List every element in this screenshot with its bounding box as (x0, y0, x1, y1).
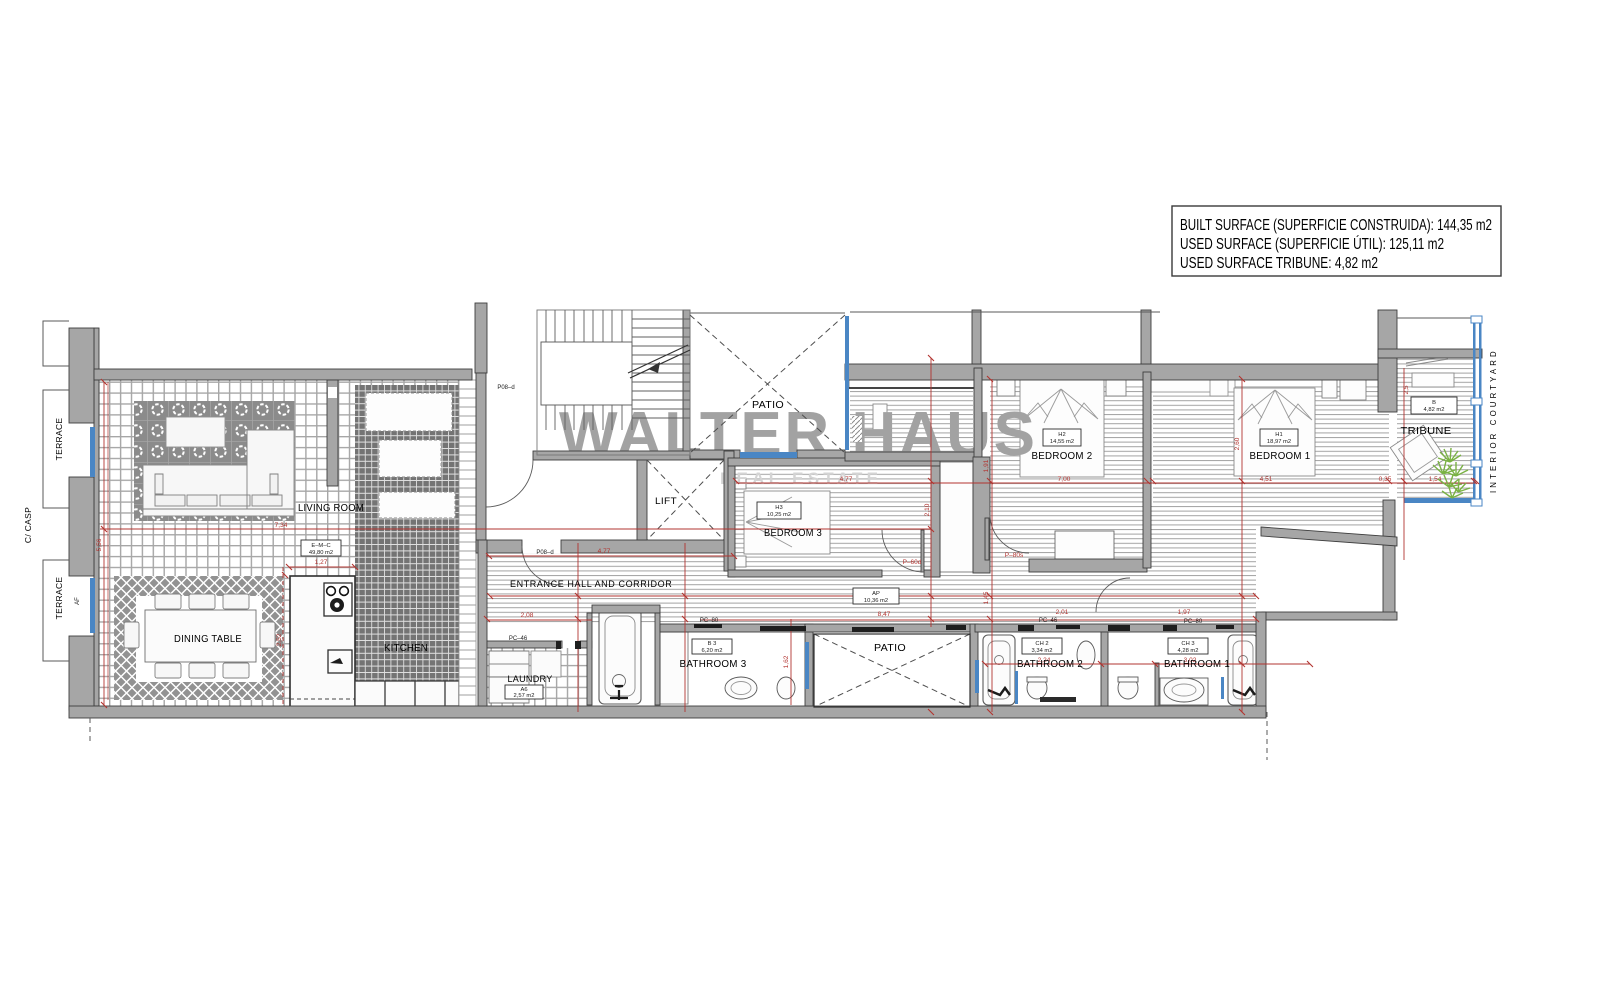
svg-text:6,20 m2: 6,20 m2 (702, 648, 723, 654)
svg-text:PC–80: PC–80 (1184, 619, 1203, 625)
svg-text:4,82 m2: 4,82 m2 (1424, 407, 1445, 413)
svg-text:P–80s: P–80s (1005, 552, 1024, 559)
svg-text:2,08: 2,08 (521, 612, 534, 619)
svg-text:PC–80: PC–80 (700, 618, 719, 624)
svg-text:REAL ESTATE: REAL ESTATE (720, 469, 878, 488)
svg-text:BEDROOM 3: BEDROOM 3 (764, 527, 822, 539)
svg-text:10,25 m2: 10,25 m2 (767, 512, 791, 518)
svg-text:E–M–C: E–M–C (311, 543, 330, 549)
svg-text:P08–d: P08–d (536, 550, 553, 556)
svg-text:4,77: 4,77 (840, 476, 853, 483)
svg-text:CH 2: CH 2 (1035, 641, 1048, 647)
svg-text:B: B (1432, 400, 1436, 406)
svg-text:H3: H3 (775, 505, 782, 511)
svg-text:USED SURFACE (SUPERFICIE ÚTIL): USED SURFACE (SUPERFICIE ÚTIL): 125,11 m… (1180, 236, 1444, 253)
svg-text:1,62: 1,62 (783, 655, 790, 668)
svg-text:DINING TABLE: DINING TABLE (174, 633, 242, 645)
svg-text:4,77: 4,77 (598, 548, 611, 555)
svg-text:LIFT: LIFT (655, 496, 677, 507)
svg-text:C/ CASP: C/ CASP (23, 507, 33, 543)
svg-text:1,91: 1,91 (983, 459, 990, 472)
svg-text:4,51: 4,51 (1260, 476, 1273, 483)
svg-text:LIVING ROOM: LIVING ROOM (298, 502, 364, 514)
svg-text:1,97: 1,97 (1178, 609, 1191, 616)
svg-text:ENTRANCE HALL AND CORRIDOR: ENTRANCE HALL AND CORRIDOR (510, 579, 672, 589)
svg-text:PATIO: PATIO (752, 399, 784, 411)
svg-text:BEDROOM 1: BEDROOM 1 (1250, 450, 1311, 462)
svg-text:7,34: 7,34 (275, 522, 288, 529)
svg-text:AP: AP (872, 591, 880, 597)
svg-text:LAUNDRY: LAUNDRY (508, 674, 553, 685)
svg-text:PC–46: PC–46 (509, 636, 528, 642)
svg-text:TRIBUNE: TRIBUNE (1401, 425, 1452, 437)
svg-text:CH 3: CH 3 (1181, 641, 1194, 647)
svg-text:PATIO: PATIO (874, 642, 906, 654)
svg-text:3,34 m2: 3,34 m2 (1032, 648, 1053, 654)
svg-text:TERRACE: TERRACE (54, 577, 64, 620)
svg-text:B 3: B 3 (708, 641, 717, 647)
svg-text:1,45: 1,45 (983, 591, 990, 604)
svg-text:2,10: 2,10 (924, 503, 931, 516)
svg-text:USED SURFACE TRIBUNE: 4,82 m2: USED SURFACE TRIBUNE: 4,82 m2 (1180, 255, 1378, 272)
svg-text:BATHROOM 1: BATHROOM 1 (1164, 658, 1230, 670)
svg-text:2,57 m2: 2,57 m2 (514, 693, 535, 699)
svg-text:4,28 m2: 4,28 m2 (1178, 648, 1199, 654)
svg-text:PC–46: PC–46 (1039, 618, 1058, 624)
svg-text:H1: H1 (1275, 432, 1282, 438)
svg-text:BATHROOM 2: BATHROOM 2 (1017, 658, 1083, 670)
svg-text:2,52: 2,52 (276, 633, 283, 646)
svg-text:KITCHEN: KITCHEN (384, 642, 428, 654)
svg-text:2,5: 2,5 (1403, 385, 1410, 394)
svg-text:P08–d: P08–d (497, 385, 514, 391)
svg-text:BATHROOM 3: BATHROOM 3 (680, 658, 747, 670)
svg-text:1,27: 1,27 (315, 559, 328, 566)
svg-text:P–60d: P–60d (903, 559, 922, 566)
svg-text:2,01: 2,01 (1056, 609, 1069, 616)
svg-text:14,55 m2: 14,55 m2 (1050, 439, 1074, 445)
svg-text:TERRACE: TERRACE (54, 418, 64, 461)
svg-text:AF: AF (75, 597, 81, 605)
svg-text:BUILT SURFACE (SUPERFICIE CONS: BUILT SURFACE (SUPERFICIE CONSTRUIDA): 1… (1180, 217, 1492, 234)
svg-text:49,80 m2: 49,80 m2 (309, 550, 333, 556)
svg-text:0,35: 0,35 (1379, 476, 1392, 483)
svg-text:7,00: 7,00 (1058, 476, 1071, 483)
svg-text:5,56: 5,56 (96, 538, 103, 551)
svg-text:18,97 m2: 18,97 m2 (1267, 439, 1291, 445)
svg-text:10,36 m2: 10,36 m2 (864, 598, 888, 604)
svg-text:8,47: 8,47 (878, 611, 891, 618)
svg-text:H2: H2 (1058, 432, 1065, 438)
svg-text:BEDROOM 2: BEDROOM 2 (1032, 450, 1093, 462)
svg-text:2,60: 2,60 (1234, 437, 1241, 450)
svg-text:INTERIOR COURTYARD: INTERIOR COURTYARD (1489, 351, 1498, 493)
